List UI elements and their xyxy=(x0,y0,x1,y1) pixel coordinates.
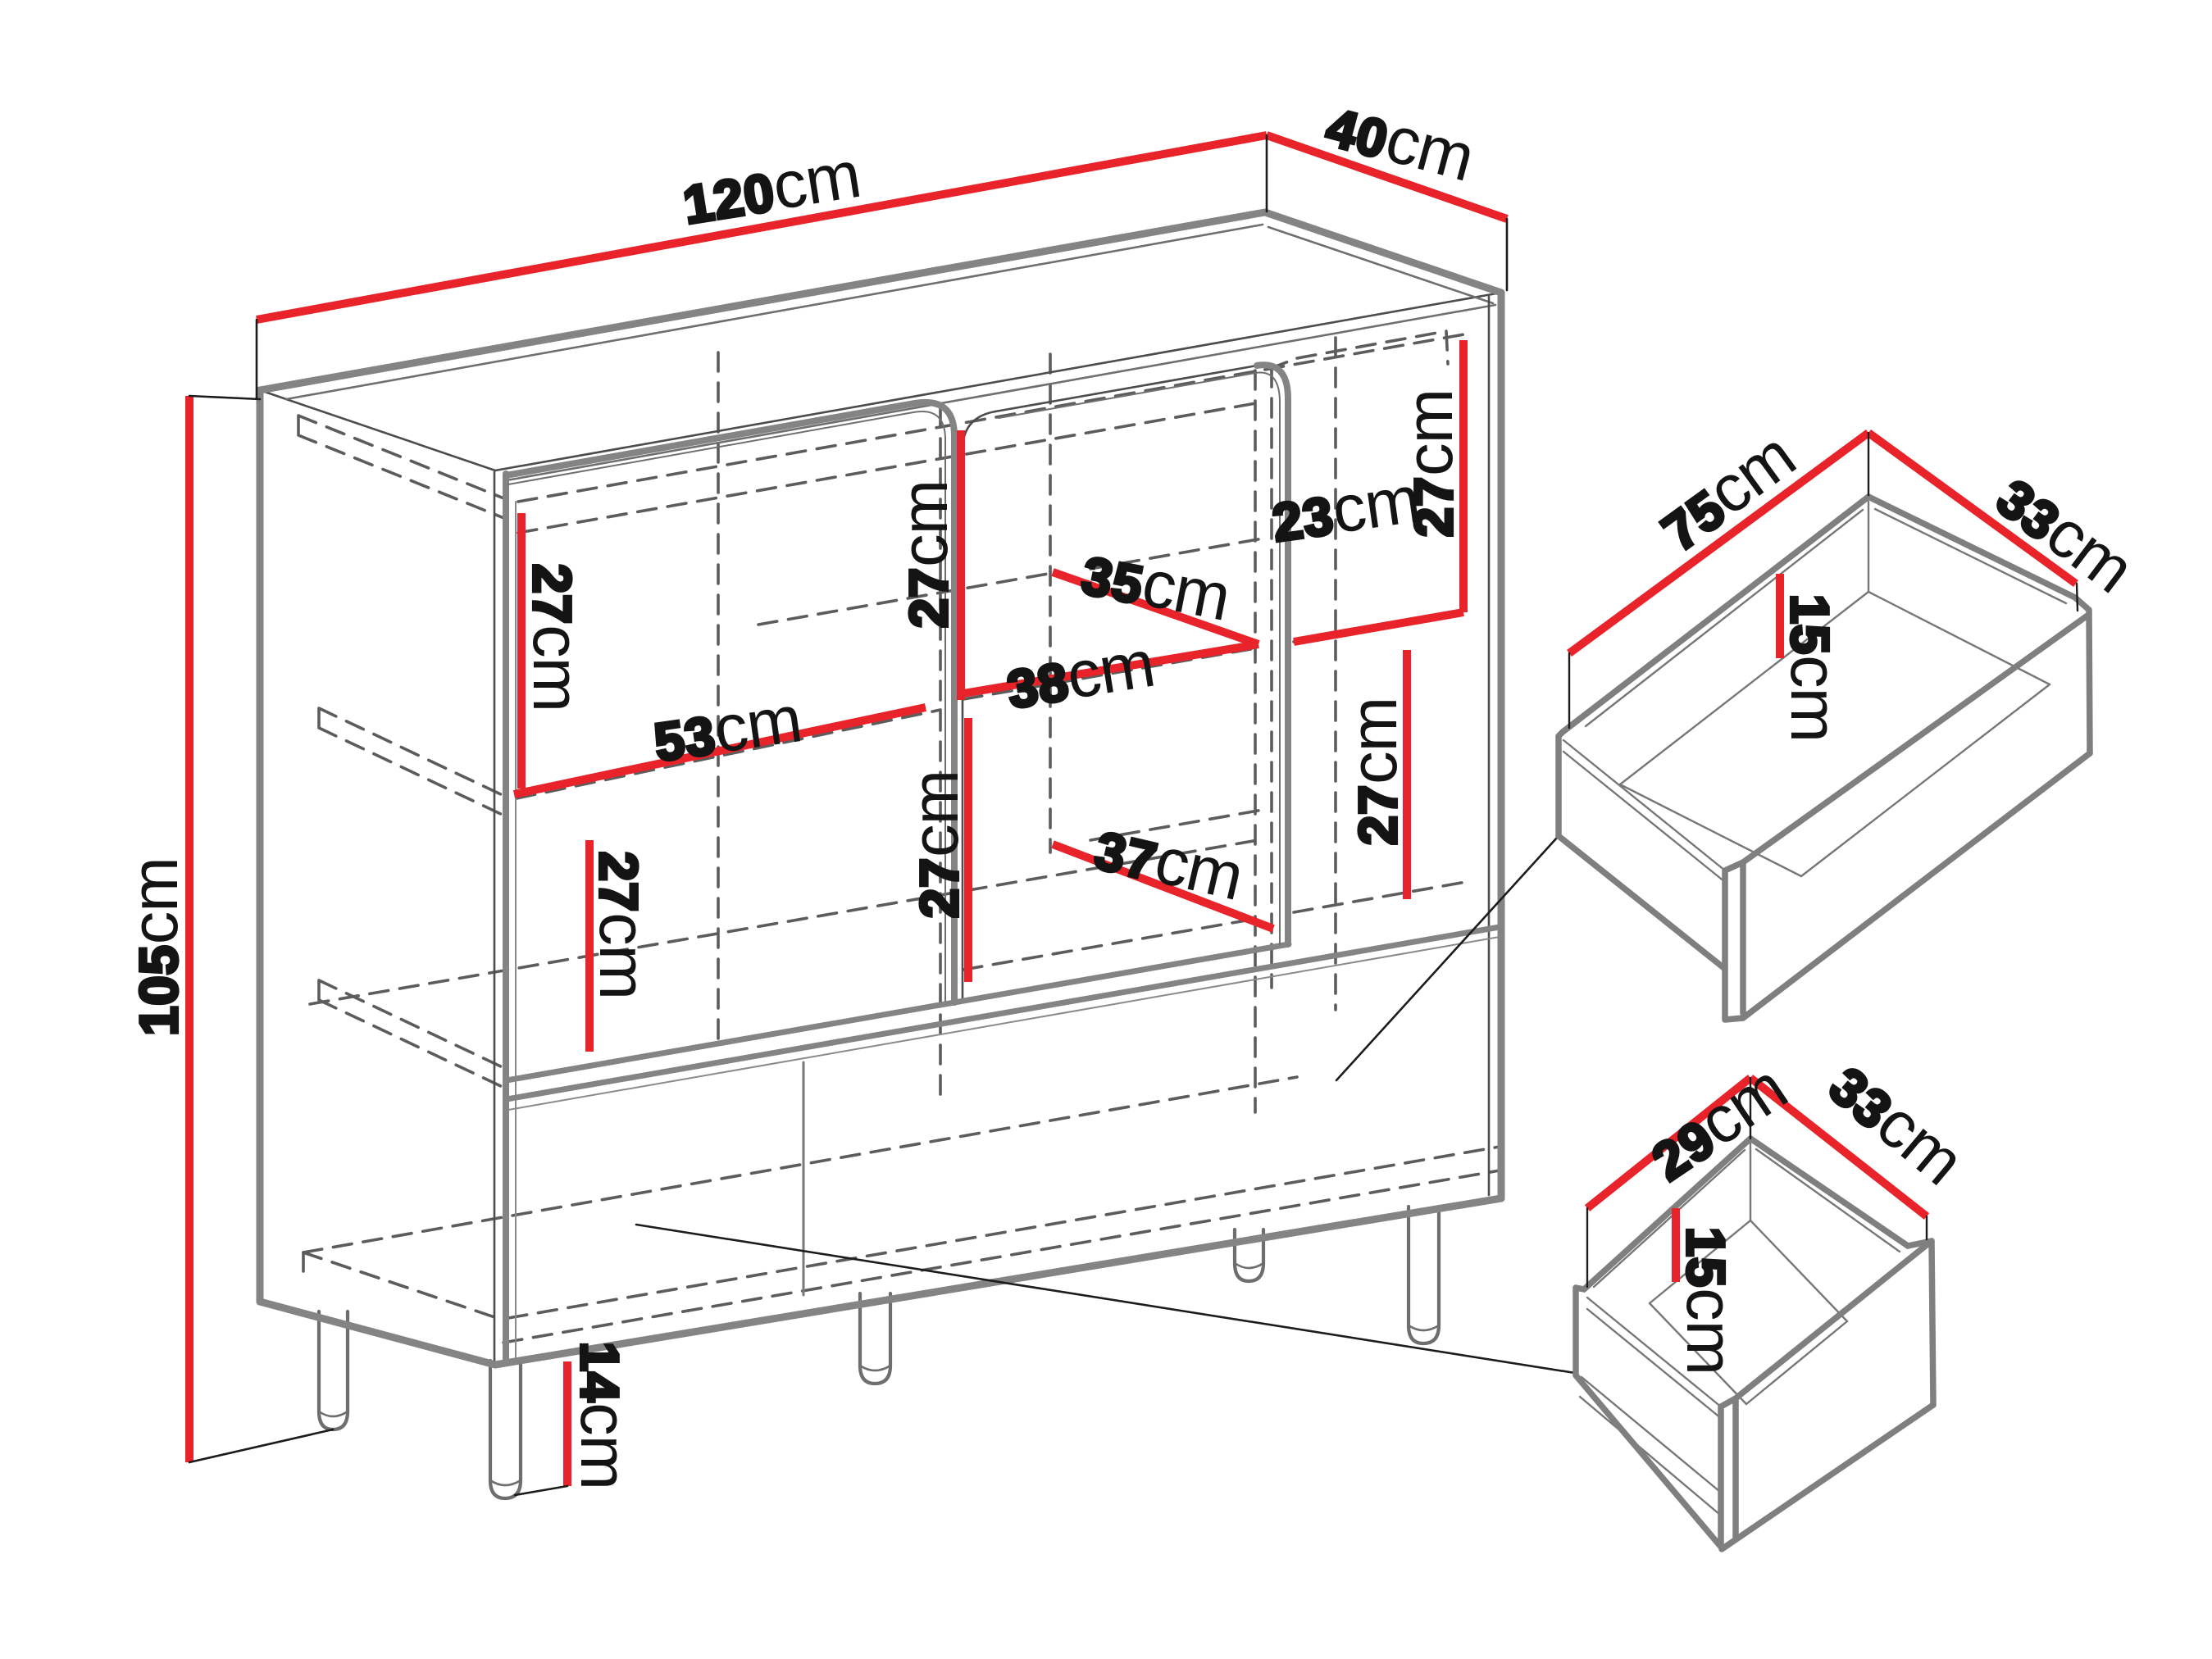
svg-text:15cm: 15cm xyxy=(1777,594,1850,742)
svg-text:27cm: 27cm xyxy=(1337,698,1411,845)
svg-text:27cm: 27cm xyxy=(888,480,962,628)
svg-text:27cm: 27cm xyxy=(585,852,659,999)
svg-text:27cm: 27cm xyxy=(899,770,972,918)
svg-text:14cm: 14cm xyxy=(567,1342,640,1489)
svg-text:27cm: 27cm xyxy=(1393,389,1467,537)
svg-text:105cm: 105cm xyxy=(118,857,192,1035)
svg-text:15cm: 15cm xyxy=(1673,1227,1746,1375)
svg-text:27cm: 27cm xyxy=(519,564,593,711)
